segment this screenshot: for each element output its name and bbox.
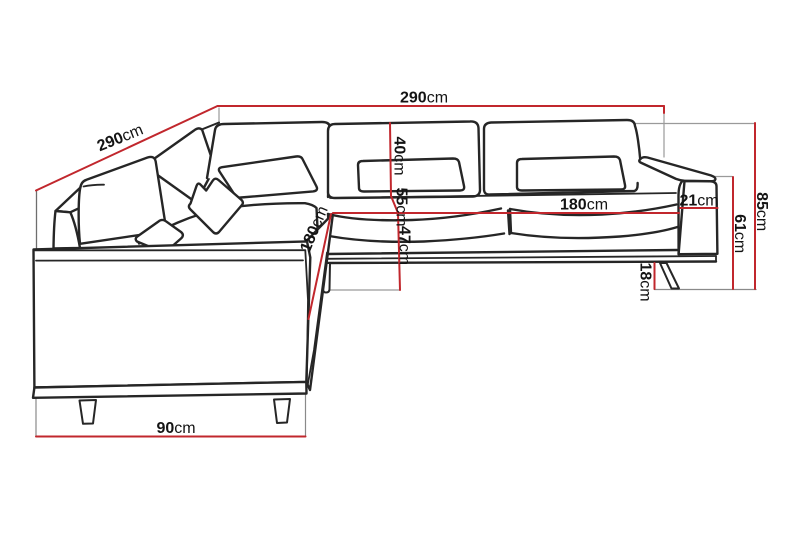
svg-text:180cm: 180cm [560,197,608,214]
svg-text:40cm: 40cm [391,136,408,175]
svg-text:61cm: 61cm [731,214,748,253]
svg-text:90cm: 90cm [156,420,195,437]
svg-text:21cm: 21cm [679,193,718,210]
svg-text:18cm: 18cm [637,262,654,301]
svg-text:47cm: 47cm [396,226,413,265]
svg-text:85cm: 85cm [753,192,770,231]
svg-text:290cm: 290cm [400,90,448,107]
svg-text:55cm: 55cm [393,187,410,226]
